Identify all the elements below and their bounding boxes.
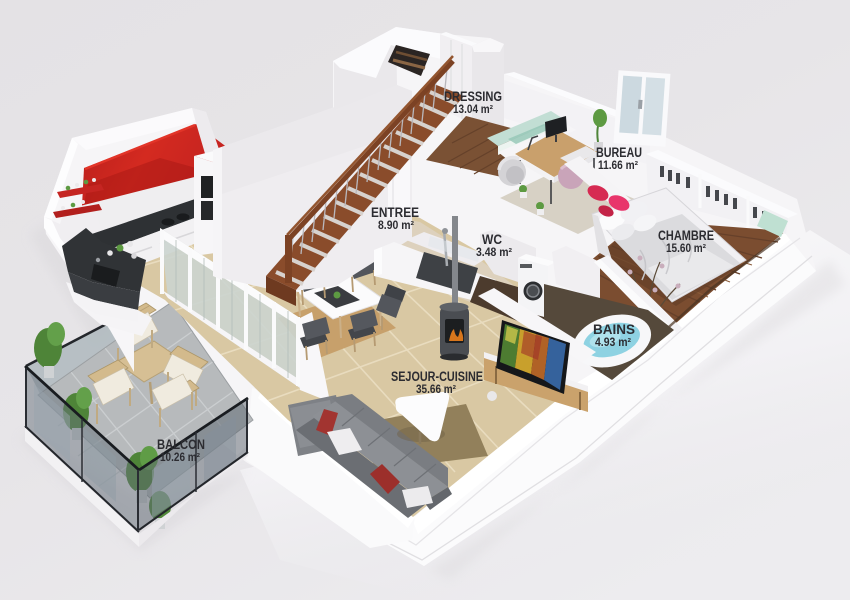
svg-text:8.90 m²: 8.90 m²	[378, 220, 414, 232]
svg-text:10.26 m²: 10.26 m²	[160, 452, 200, 464]
svg-text:3.48 m²: 3.48 m²	[476, 247, 512, 259]
svg-text:BUREAU: BUREAU	[596, 145, 642, 160]
svg-text:4.93 m²: 4.93 m²	[595, 337, 631, 349]
svg-text:BAINS: BAINS	[593, 322, 635, 337]
svg-text:DRESSING: DRESSING	[444, 89, 502, 104]
svg-text:11.66 m²: 11.66 m²	[598, 160, 638, 172]
svg-text:SEJOUR-CUISINE: SEJOUR-CUISINE	[391, 369, 483, 384]
svg-text:13.04 m²: 13.04 m²	[453, 104, 493, 116]
svg-text:ENTREE: ENTREE	[371, 205, 419, 220]
svg-text:35.66 m²: 35.66 m²	[416, 384, 456, 396]
svg-text:BALCON: BALCON	[157, 437, 205, 452]
svg-text:15.60 m²: 15.60 m²	[666, 243, 706, 255]
svg-text:CHAMBRE: CHAMBRE	[658, 228, 714, 243]
svg-text:WC: WC	[482, 232, 502, 247]
